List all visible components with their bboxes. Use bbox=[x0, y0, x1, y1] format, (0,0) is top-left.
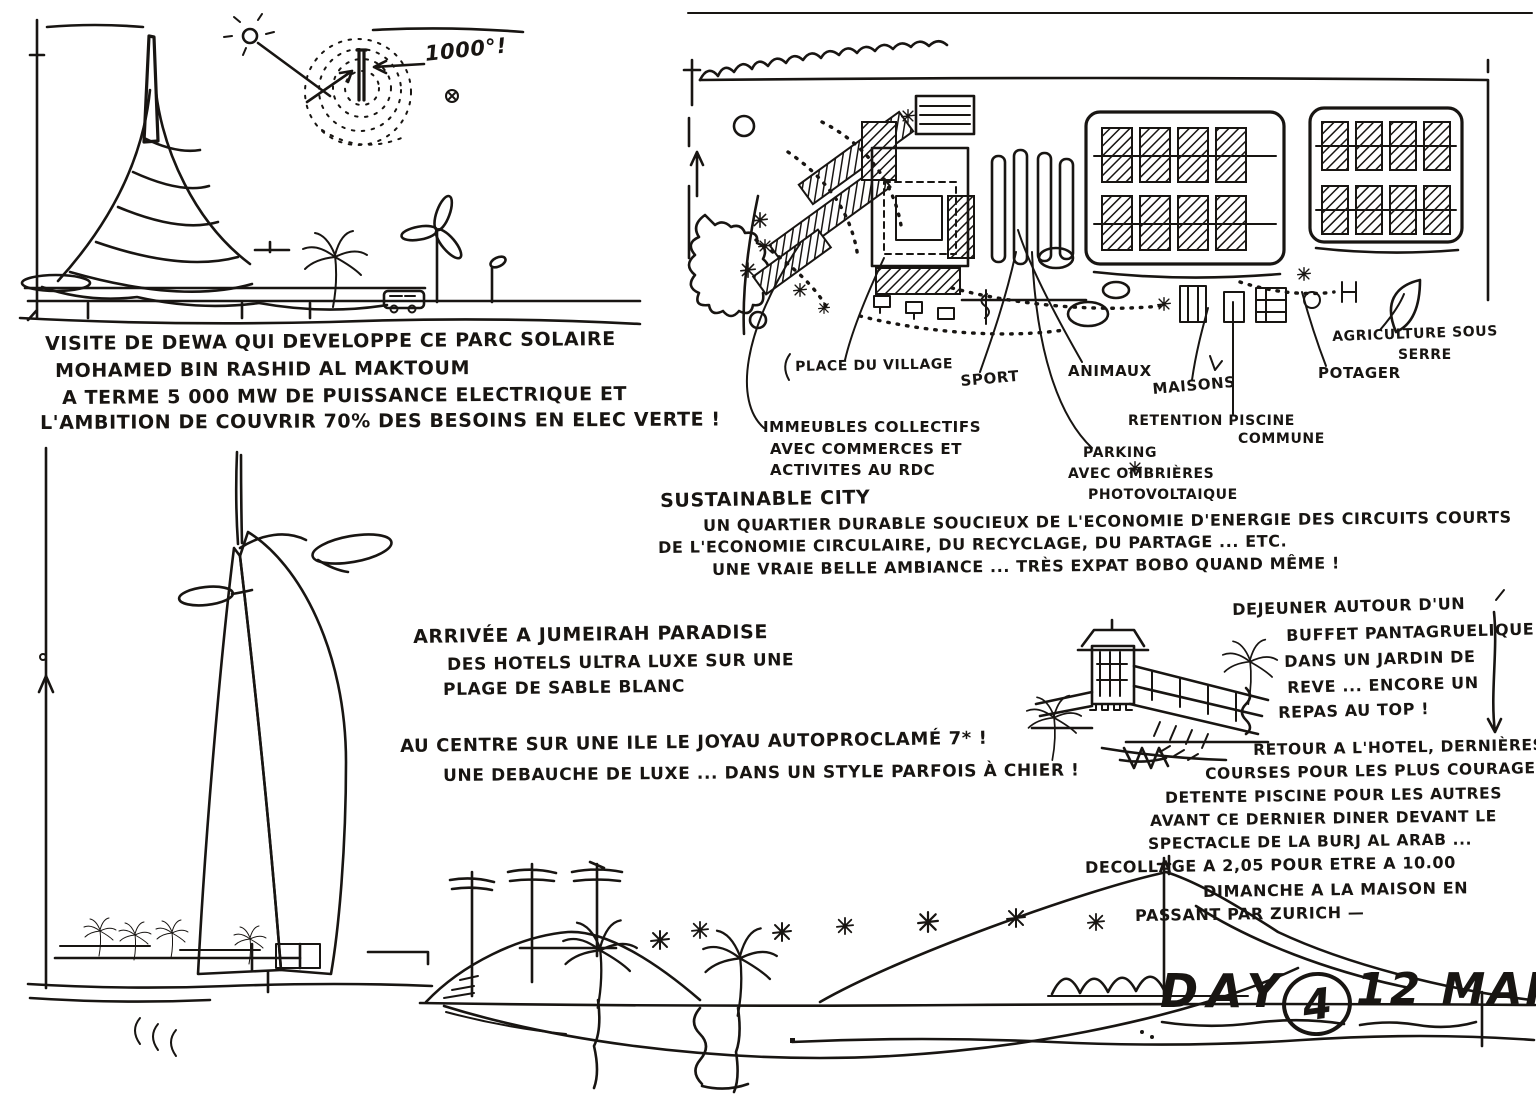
day-word: DAY bbox=[1160, 968, 1289, 1014]
jumeirah-note-line: PLAGE DE SABLE BLANC bbox=[443, 679, 685, 699]
solar-park-note-line: MOHAMED BIN RASHID AL MAKTOUM bbox=[55, 359, 470, 381]
plan-label-place-du-village: PLACE DU VILLAGE bbox=[795, 357, 953, 374]
plan-label-retention: COMMUNE bbox=[1238, 432, 1325, 446]
madinat-jumeirah-sketch bbox=[1027, 620, 1277, 768]
sustainable-city-plan-sketch bbox=[689, 41, 1488, 474]
sustainable-city-title: SUSTAINABLE CITY bbox=[660, 488, 870, 511]
plan-label-potager: POTAGER bbox=[1318, 366, 1401, 381]
sketchbook-page: VISITE DE DEWA QUI DEVELOPPE CE PARC SOL… bbox=[0, 0, 1536, 1098]
plan-label-retention: RETENTION PISCINE bbox=[1128, 414, 1295, 428]
jumeirah-note-line: DES HOTELS ULTRA LUXE SUR UNE bbox=[447, 652, 794, 674]
lunch-note-line: REPAS AU TOP ! bbox=[1278, 701, 1429, 721]
plan-label-immeubles: AVEC COMMERCES ET bbox=[770, 442, 962, 457]
heliostat-field-sketch bbox=[224, 14, 458, 145]
plan-label-parking: AVEC OMBRIÈRES bbox=[1068, 467, 1214, 481]
plan-label-parking: PARKING bbox=[1083, 446, 1157, 460]
solar-park-note-line: A TERME 5 000 MW DE PUISSANCE ELECTRIQUE… bbox=[62, 385, 627, 408]
plan-label-immeubles: IMMEUBLES COLLECTIFS bbox=[763, 420, 981, 435]
plan-label-immeubles: ACTIVITES AU RDC bbox=[770, 463, 935, 478]
dewa-solar-park-sketch bbox=[22, 36, 640, 318]
jumeirah-note-line: ARRIVÉE A JUMEIRAH PARADISE bbox=[413, 623, 768, 647]
plan-label-agriculture: SERRE bbox=[1398, 348, 1452, 362]
plan-label-parking: PHOTOVOLTAIQUE bbox=[1088, 488, 1238, 502]
solar-park-note-line: L'AMBITION DE COUVRIR 70% DES BESOINS EN… bbox=[40, 410, 721, 433]
date-label: 12 MARS bbox=[1356, 968, 1536, 1012]
departure-note-line: PASSANT PAR ZURICH — bbox=[1135, 905, 1365, 924]
plan-label-animaux: ANIMAUX bbox=[1068, 364, 1152, 379]
solar-park-note-line: VISITE DE DEWA QUI DEVELOPPE CE PARC SOL… bbox=[45, 330, 616, 354]
day-number: 4 bbox=[1299, 978, 1335, 1031]
plan-leader-lines bbox=[747, 230, 1404, 448]
departure-note-line: DIMANCHE A LA MAISON EN bbox=[1203, 880, 1468, 900]
